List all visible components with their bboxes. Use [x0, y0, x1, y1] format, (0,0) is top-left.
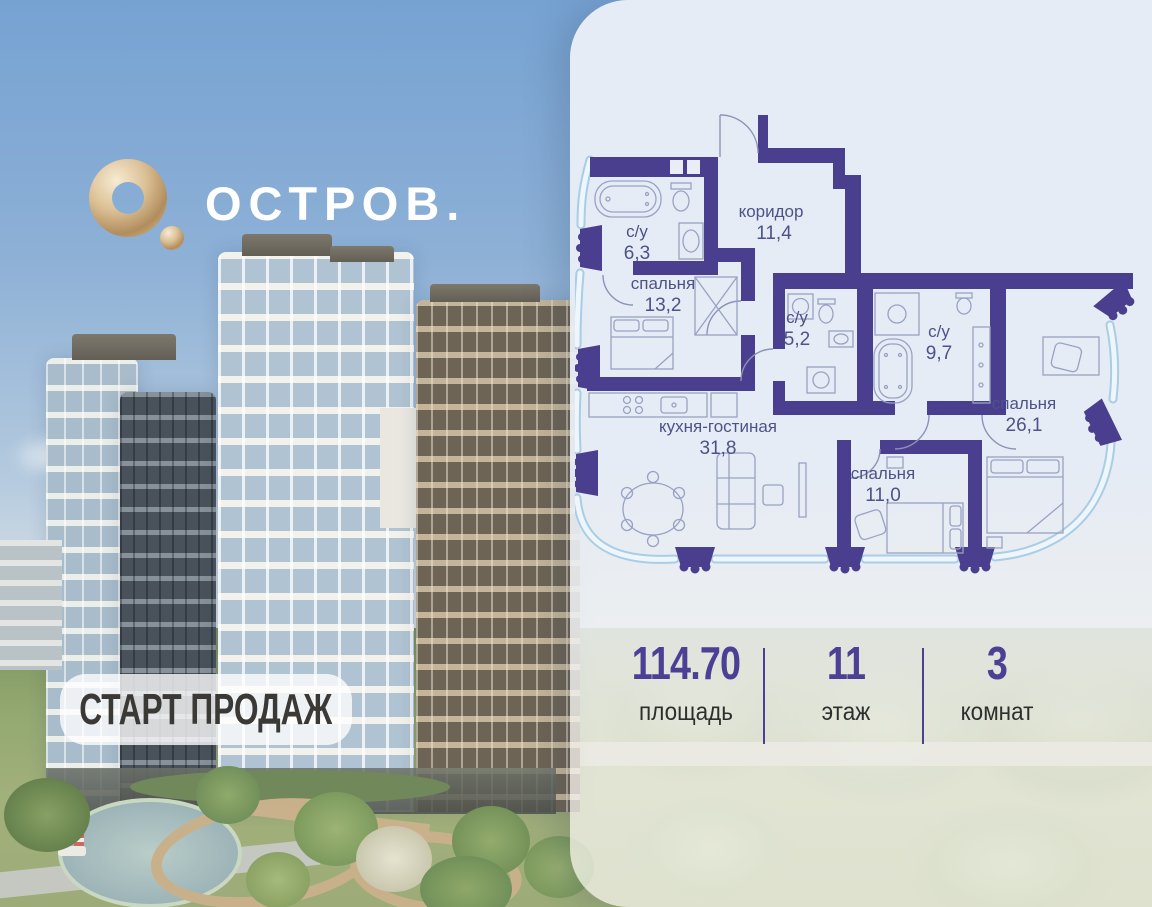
building-roof	[430, 284, 540, 302]
stat-floor-value: 11	[785, 636, 908, 690]
room-label: спальня	[631, 274, 696, 293]
room-label: коридор	[739, 202, 804, 221]
room-area: 26,1	[1006, 415, 1043, 436]
room-area: 5,2	[784, 329, 810, 350]
tree	[4, 778, 90, 852]
room-area: 9,7	[926, 343, 952, 364]
stats-divider	[763, 648, 765, 744]
room-label: с/у	[626, 222, 648, 241]
stat-area: 114.70 площадь	[611, 636, 761, 727]
room-label: с/у	[786, 308, 808, 327]
stat-rooms: 3 комнат	[922, 636, 1072, 727]
room-area: 31,8	[700, 438, 737, 459]
building-roof	[242, 234, 332, 256]
real-estate-card: ОСТРОВ. СТАРТ ПРОДАЖ	[0, 0, 1152, 907]
stat-rooms-label: комнат	[930, 698, 1065, 727]
building-far-left	[0, 540, 62, 670]
room-area: 6,3	[624, 243, 650, 264]
building-roof	[72, 334, 176, 360]
building-tower-right	[416, 300, 580, 812]
tree	[196, 766, 260, 824]
stat-area-value: 114.70	[625, 636, 748, 690]
building-roof	[330, 246, 394, 262]
gold-torus-icon	[80, 150, 200, 260]
brand-title: ОСТРОВ.	[205, 176, 466, 231]
tree	[246, 852, 310, 907]
room-area: 13,2	[645, 295, 682, 316]
stats-row: 114.70 площадь 11 этаж 3 комнат	[570, 636, 1152, 766]
room-label: спальня	[992, 394, 1057, 413]
sales-start-badge: СТАРТ ПРОДАЖ	[60, 674, 352, 745]
apartment-panel: с/у 6,3 коридор 11,4 спальня 13,2 с/у 5,…	[570, 0, 1152, 907]
room-area: 11,0	[865, 485, 901, 506]
stat-rooms-value: 3	[936, 636, 1059, 690]
room-label: кухня-гостиная	[659, 417, 777, 436]
stat-area-label: площадь	[619, 698, 754, 727]
building-tower-left-dark	[120, 392, 216, 812]
sales-start-label: СТАРТ ПРОДАЖ	[80, 685, 333, 735]
stat-floor: 11 этаж	[771, 636, 921, 727]
room-label: с/у	[928, 322, 950, 341]
floor-plan: с/у 6,3 коридор 11,4 спальня 13,2 с/у 5,…	[575, 105, 1150, 585]
room-area: 11,4	[756, 223, 792, 244]
room-label: спальня	[851, 464, 916, 483]
stat-floor-label: этаж	[779, 698, 914, 727]
